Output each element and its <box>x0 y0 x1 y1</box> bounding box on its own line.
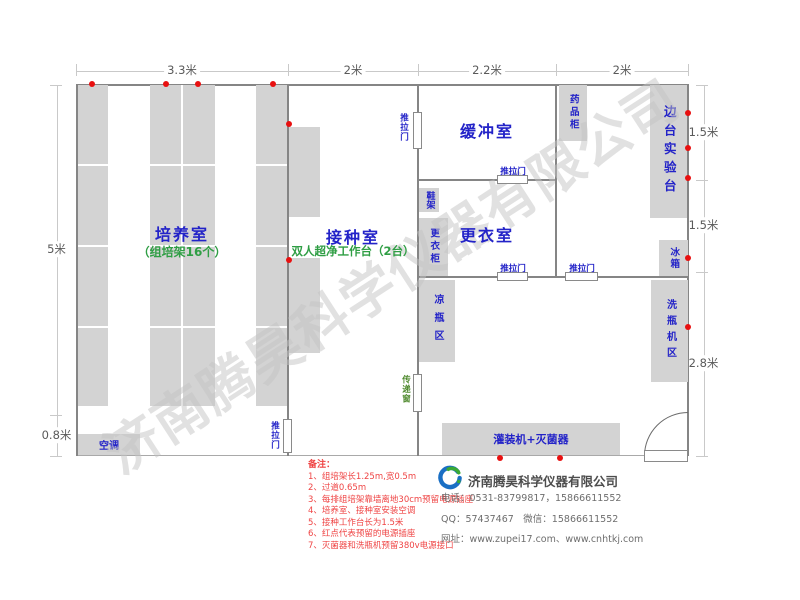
dim-top-1: 3.3米 <box>76 64 288 77</box>
dim-tick <box>696 85 708 86</box>
company-phone: 电话：0531-83799817，15866611552 <box>441 490 621 504</box>
dim-label: 3.3米 <box>164 62 200 78</box>
dim-label: 1.5米 <box>686 124 722 140</box>
dim-tick <box>76 64 77 76</box>
air-conditioner-box: 空调 <box>78 434 140 455</box>
dim-label: 2米 <box>610 62 635 78</box>
shoe-rack-label: 鞋架 <box>425 191 434 209</box>
dim-tick <box>696 272 708 273</box>
bottle-cooling-box: 凉瓶区 <box>419 280 455 362</box>
power-outlet-dot <box>557 455 563 461</box>
dim-label: 2.8米 <box>686 355 722 371</box>
filling-machine-label: 灌装机+灭菌器 <box>493 431 568 447</box>
dim-top-2: 2米 <box>288 64 418 77</box>
medicine-cabinet-box: 药品柜 <box>559 85 587 141</box>
room-label-changing: 更衣室 <box>418 222 556 246</box>
room-label-cultivation: 培养室 <box>76 221 288 245</box>
fridge-label: 冰箱 <box>669 247 679 270</box>
bottle-washer-label: 洗瓶机区 <box>665 299 675 363</box>
sliding-door-label: 推拉门 <box>399 113 408 142</box>
swing-door-leaf <box>644 450 688 462</box>
pass-window-symbol <box>413 374 422 412</box>
power-outlet-dot <box>685 110 691 116</box>
dim-tick <box>696 456 708 457</box>
power-outlet-dot <box>685 324 691 330</box>
shoe-rack-box: 鞋架 <box>419 188 439 212</box>
floor-plan-canvas: 3.3米 2米 2.2米 2米 5米 0.8米 1.5米 1.5米 2.8米 <box>0 0 800 600</box>
bottle-washer-box: 洗瓶机区 <box>651 280 688 382</box>
power-outlet-dot <box>89 81 95 87</box>
wall-changing-bottomroom <box>418 276 688 278</box>
dim-label: 1.5米 <box>686 217 722 233</box>
dim-right-1: 1.5米 <box>697 85 710 180</box>
dim-left-1: 5米 <box>50 85 63 415</box>
bottle-cooling-label: 凉瓶区 <box>432 294 442 348</box>
air-conditioner-label: 空调 <box>99 437 119 452</box>
dim-label: 2.2米 <box>469 62 505 78</box>
company-qq-wechat: QQ：57437467 微信：15866611552 <box>441 511 618 525</box>
dim-top-4: 2米 <box>556 64 688 77</box>
dim-right-2: 1.5米 <box>697 180 710 272</box>
dim-tick <box>50 85 62 86</box>
company-website: 网址：www.zupei17.com、www.cnhtkj.com <box>441 531 643 545</box>
dim-tick <box>50 415 62 416</box>
side-bench-label: 边台实验台 <box>662 105 675 198</box>
room-label-buffer: 缓冲室 <box>418 118 556 142</box>
dim-label: 5米 <box>44 241 69 257</box>
medicine-cabinet-label: 药品柜 <box>568 94 578 132</box>
power-outlet-dot <box>163 81 169 87</box>
room-sub-cultivation: （组培架16个） <box>76 243 288 260</box>
dim-tick <box>288 64 289 76</box>
power-outlet-dot <box>685 175 691 181</box>
dim-tick <box>688 64 689 76</box>
clean-bench-2 <box>289 258 320 353</box>
power-outlet-dot <box>270 81 276 87</box>
dim-label: 0.8米 <box>39 427 75 443</box>
filling-machine-box: 灌装机+灭菌器 <box>442 423 620 455</box>
company-logo-icon <box>436 464 464 492</box>
sliding-door-label: 推拉门 <box>493 262 533 274</box>
dim-tick <box>556 64 557 76</box>
power-outlet-dot <box>286 257 292 263</box>
pass-window-label: 传递窗 <box>401 375 410 404</box>
power-outlet-dot <box>195 81 201 87</box>
dim-top-3: 2.2米 <box>418 64 556 77</box>
wall-bottom <box>76 455 689 456</box>
power-outlet-dot <box>497 455 503 461</box>
sliding-door-symbol <box>283 419 292 453</box>
dim-tick <box>418 64 419 76</box>
power-outlet-dot <box>685 255 691 261</box>
power-outlet-dot <box>685 145 691 151</box>
clean-bench-1 <box>289 127 320 217</box>
sliding-door-label: 推拉门 <box>493 165 533 177</box>
dim-right-3: 2.8米 <box>697 272 710 456</box>
wall-buffer-changing <box>418 179 556 181</box>
wall-buffer-right <box>555 85 557 277</box>
dim-left-2: 0.8米 <box>50 415 63 456</box>
dim-tick <box>696 180 708 181</box>
power-outlet-dot <box>286 121 292 127</box>
side-bench-box: 边台实验台 <box>650 85 687 218</box>
company-name: 济南腾昊科学仪器有限公司 <box>468 471 618 490</box>
dim-label: 2米 <box>341 62 366 78</box>
sliding-door-label: 推拉门 <box>562 262 602 274</box>
room-sub-inoculation: 双人超净工作台（2台） <box>283 243 423 259</box>
sliding-door-label: 推拉门 <box>270 421 279 450</box>
dim-tick <box>50 456 62 457</box>
fridge-box: 冰箱 <box>659 240 688 276</box>
